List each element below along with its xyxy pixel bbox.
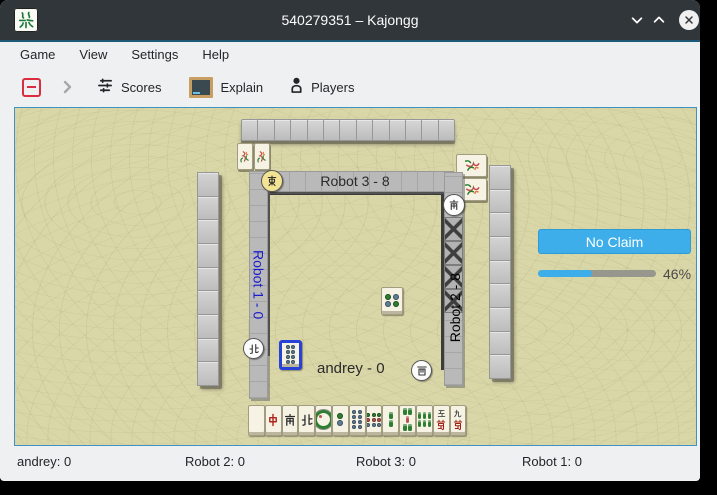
- hand-tile-circle-2[interactable]: [332, 405, 349, 436]
- wall-tile: [489, 354, 511, 379]
- tile-face: [286, 344, 296, 367]
- tile-face: [352, 407, 362, 435]
- explain-button[interactable]: Explain: [189, 77, 263, 98]
- wall-top: [241, 119, 455, 141]
- close-button[interactable]: [679, 10, 699, 30]
- pip-row: [385, 301, 399, 307]
- menu-settings[interactable]: Settings: [121, 47, 188, 62]
- robot1-board: Robot 1 - 0: [249, 171, 268, 399]
- wall-tile: [372, 119, 388, 141]
- status-bar: andrey: 0 Robot 2: 0 Robot 3: 0 Robot 1:…: [0, 446, 700, 478]
- hand-tile-character-5[interactable]: [433, 405, 450, 436]
- wall-tile: [489, 236, 511, 260]
- tile-face: [283, 407, 297, 435]
- andrey-label: andrey - 0: [317, 360, 385, 377]
- wall-tile: [489, 165, 511, 189]
- wall-tile: [197, 267, 219, 291]
- progress-percent-label: 46%: [663, 266, 691, 282]
- claim-timeout-progressbar: [538, 270, 656, 277]
- wall-left: [197, 172, 219, 386]
- tile-face: [403, 407, 412, 435]
- wall-tile: [356, 119, 372, 141]
- hand-tile-wind-south[interactable]: [282, 405, 299, 436]
- explain-label: Explain: [220, 80, 263, 95]
- stick-row: [406, 416, 410, 423]
- players-button[interactable]: Players: [289, 77, 354, 97]
- wall-tile: [438, 119, 455, 141]
- wall-tile: [405, 119, 421, 141]
- discard-tile-circle-8: [279, 340, 302, 370]
- tile-face: [300, 407, 314, 435]
- chevron-right-icon: [59, 79, 75, 95]
- wall-tile: [197, 219, 219, 243]
- wind-disc-andrey: [411, 360, 432, 381]
- robot3-board: Robot 3 - 8: [256, 171, 454, 192]
- wall-tile: [421, 119, 437, 141]
- wall-tile: [274, 119, 290, 141]
- wind-disc-robot2: [443, 194, 465, 216]
- menu-help[interactable]: Help: [192, 47, 239, 62]
- hand-tile-white-dragon[interactable]: [248, 405, 265, 436]
- minimize-button[interactable]: [627, 10, 647, 30]
- stick-row: [418, 412, 432, 419]
- stick-row: [403, 424, 412, 431]
- pip-row: [385, 294, 399, 300]
- hand-tile-circle-8[interactable]: [349, 405, 366, 436]
- wall-tile: [197, 338, 219, 362]
- menu-view[interactable]: View: [69, 47, 117, 62]
- wall-tile: [197, 243, 219, 267]
- player-hand: [248, 405, 466, 436]
- wall-tile: [489, 260, 511, 284]
- robot3-label: Robot 3 - 8: [257, 173, 453, 189]
- bonus-tile: [237, 143, 253, 170]
- pip-row: [286, 355, 296, 359]
- tile-face: [366, 407, 381, 435]
- wall-tile: [241, 119, 257, 141]
- wall-tile: [197, 290, 219, 314]
- wall-tile: [489, 331, 511, 355]
- scores-icon: [97, 77, 114, 97]
- stick-row: [389, 420, 393, 427]
- hand-tile-character-9[interactable]: [450, 405, 467, 436]
- hand-tile-circle-1[interactable]: [315, 405, 332, 436]
- wind-disc-robot1: [243, 338, 264, 359]
- wall-tile: [389, 119, 405, 141]
- wall-right: [489, 165, 511, 379]
- pip-row: [337, 413, 343, 419]
- players-label: Players: [311, 80, 354, 95]
- status-robot1-score: Robot 1: 0: [522, 454, 582, 469]
- discard-tile-circle-4: [381, 287, 403, 315]
- court-border-top: [267, 192, 444, 195]
- next-button-disabled[interactable]: [59, 79, 75, 95]
- toolbar: Scores Explain Players: [0, 67, 700, 107]
- quit-game-button[interactable]: [22, 78, 41, 97]
- status-robot3-score: Robot 3: 0: [356, 454, 416, 469]
- game-table: Robot 3 - 8 Robot 1 - 0 Robot 2 - 8 andr…: [14, 107, 697, 446]
- hand-tile-bamboo-2[interactable]: [382, 405, 399, 436]
- quit-game-icon: [22, 78, 41, 97]
- wall-tile: [307, 119, 323, 141]
- status-andrey-score: andrey: 0: [17, 454, 71, 469]
- window-title: 540279351 – Kajongg: [0, 0, 700, 40]
- pip-row: [352, 410, 362, 414]
- wall-tile: [489, 212, 511, 236]
- wall-tile: [323, 119, 339, 141]
- pip-row: [286, 350, 296, 354]
- stick-row: [403, 408, 412, 415]
- wall-tile: [257, 119, 273, 141]
- robot1-label: Robot 1 - 0: [251, 250, 267, 319]
- pip-row: [352, 415, 362, 419]
- pip-row: [337, 420, 343, 426]
- wall-tile: [489, 189, 511, 213]
- person-icon: [289, 77, 304, 97]
- robot2-label: Robot 2 - 8: [447, 273, 463, 342]
- scores-label: Scores: [121, 80, 161, 95]
- tile-face: [452, 407, 464, 435]
- bonus-tile: [254, 143, 270, 170]
- kajongg-window: 540279351 – Kajongg Game View Settings H…: [0, 0, 700, 481]
- pip-row: [352, 420, 362, 424]
- wall-tile: [197, 196, 219, 220]
- wall-tile: [489, 307, 511, 331]
- wall-tile: [489, 283, 511, 307]
- hand-tile-circle-9[interactable]: [366, 405, 383, 436]
- tile-face: [266, 407, 280, 435]
- hand-tile-wind-north[interactable]: [298, 405, 315, 436]
- wall-tile: [197, 172, 219, 196]
- robot3-bonus-tiles: [237, 143, 270, 170]
- stick-row: [418, 420, 432, 427]
- menu-game[interactable]: Game: [10, 47, 65, 62]
- tile-face: [418, 407, 432, 435]
- tile-face: [337, 407, 343, 435]
- wall-tile: [197, 314, 219, 338]
- hand-tile-bamboo-6[interactable]: [416, 405, 433, 436]
- pip-row: [352, 425, 362, 429]
- status-robot2-score: Robot 2: 0: [185, 454, 245, 469]
- no-claim-button[interactable]: No Claim: [538, 229, 691, 254]
- tile-face: [385, 289, 399, 314]
- pip-row: [366, 413, 381, 417]
- hand-tile-bamboo-5[interactable]: [399, 405, 416, 436]
- pip-row: [286, 360, 296, 364]
- pip-row: [366, 423, 381, 427]
- stick-row: [389, 412, 393, 419]
- tile-face: [389, 407, 393, 435]
- progress-fill: [538, 270, 592, 277]
- tile-face: [435, 407, 447, 435]
- maximize-button[interactable]: [649, 10, 669, 30]
- wind-disc-robot3: [261, 170, 283, 192]
- blackboard-icon: [189, 77, 213, 98]
- hand-tile-red-dragon[interactable]: [265, 405, 282, 436]
- pip-row: [286, 345, 296, 349]
- no-claim-label: No Claim: [586, 234, 644, 250]
- scores-button[interactable]: Scores: [97, 77, 161, 97]
- wall-tile: [290, 119, 306, 141]
- pip-row: [366, 418, 381, 422]
- menu-bar: Game View Settings Help: [0, 42, 700, 67]
- wall-tile: [339, 119, 355, 141]
- wall-tile: [197, 361, 219, 386]
- tile-face: [315, 407, 332, 435]
- titlebar[interactable]: 540279351 – Kajongg: [0, 0, 700, 40]
